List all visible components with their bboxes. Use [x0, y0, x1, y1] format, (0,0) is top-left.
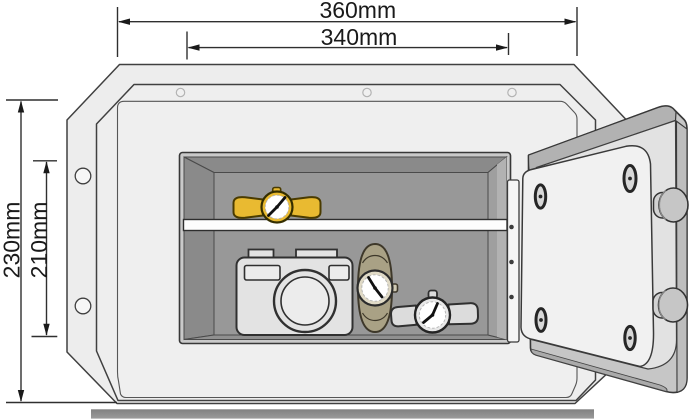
- svg-text:360mm: 360mm: [319, 0, 396, 23]
- svg-text:340mm: 340mm: [321, 24, 398, 50]
- svg-text:210mm: 210mm: [26, 202, 52, 279]
- svg-text:230mm: 230mm: [0, 202, 25, 279]
